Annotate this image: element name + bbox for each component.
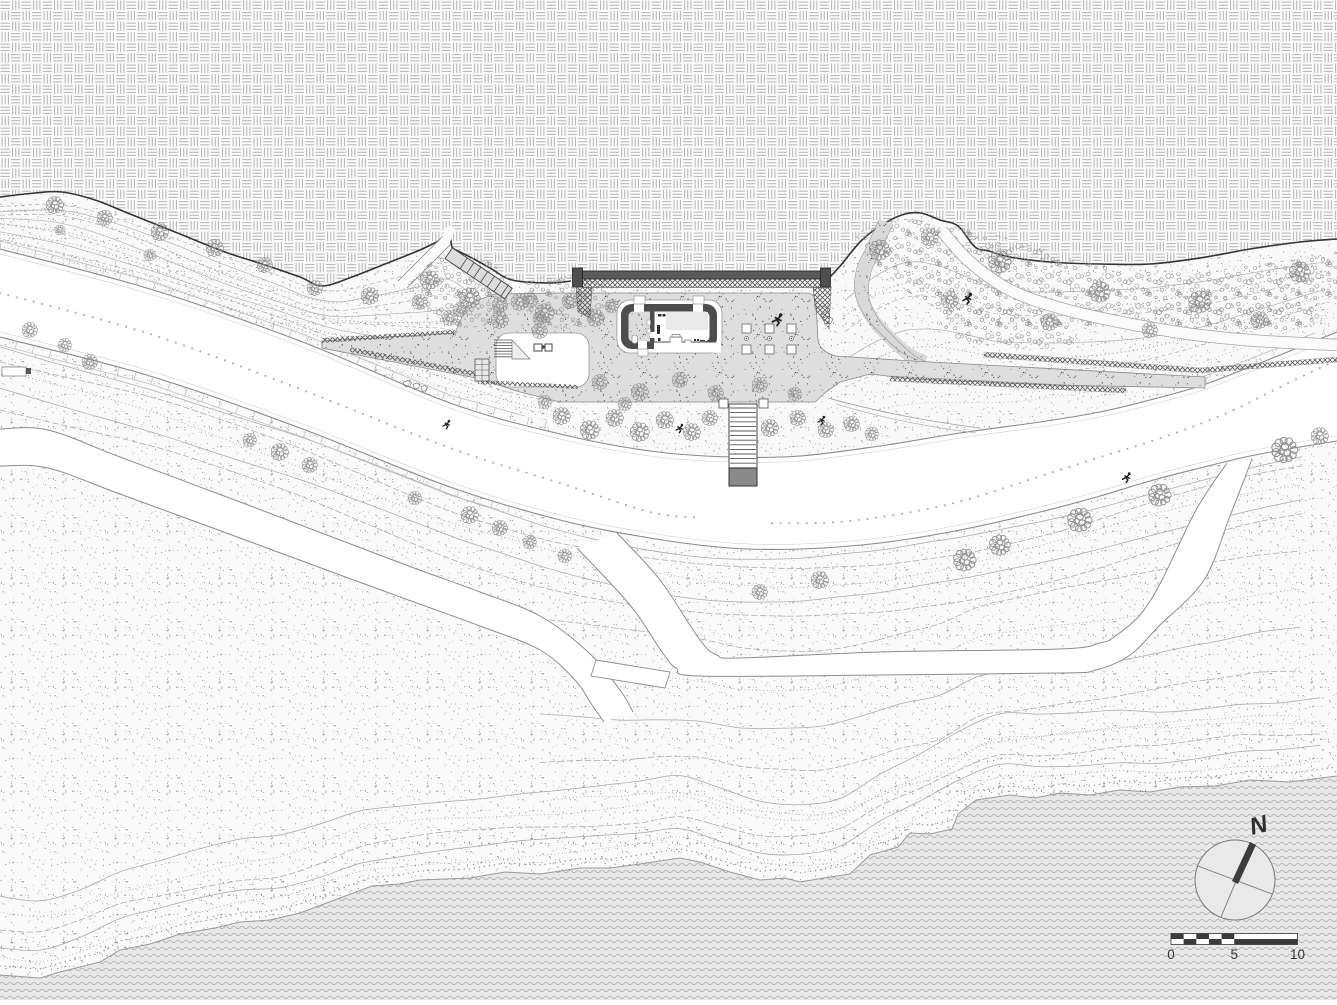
svg-text:0: 0 <box>1167 947 1175 962</box>
svg-text:10: 10 <box>1290 947 1305 962</box>
svg-text:5: 5 <box>1230 947 1238 962</box>
